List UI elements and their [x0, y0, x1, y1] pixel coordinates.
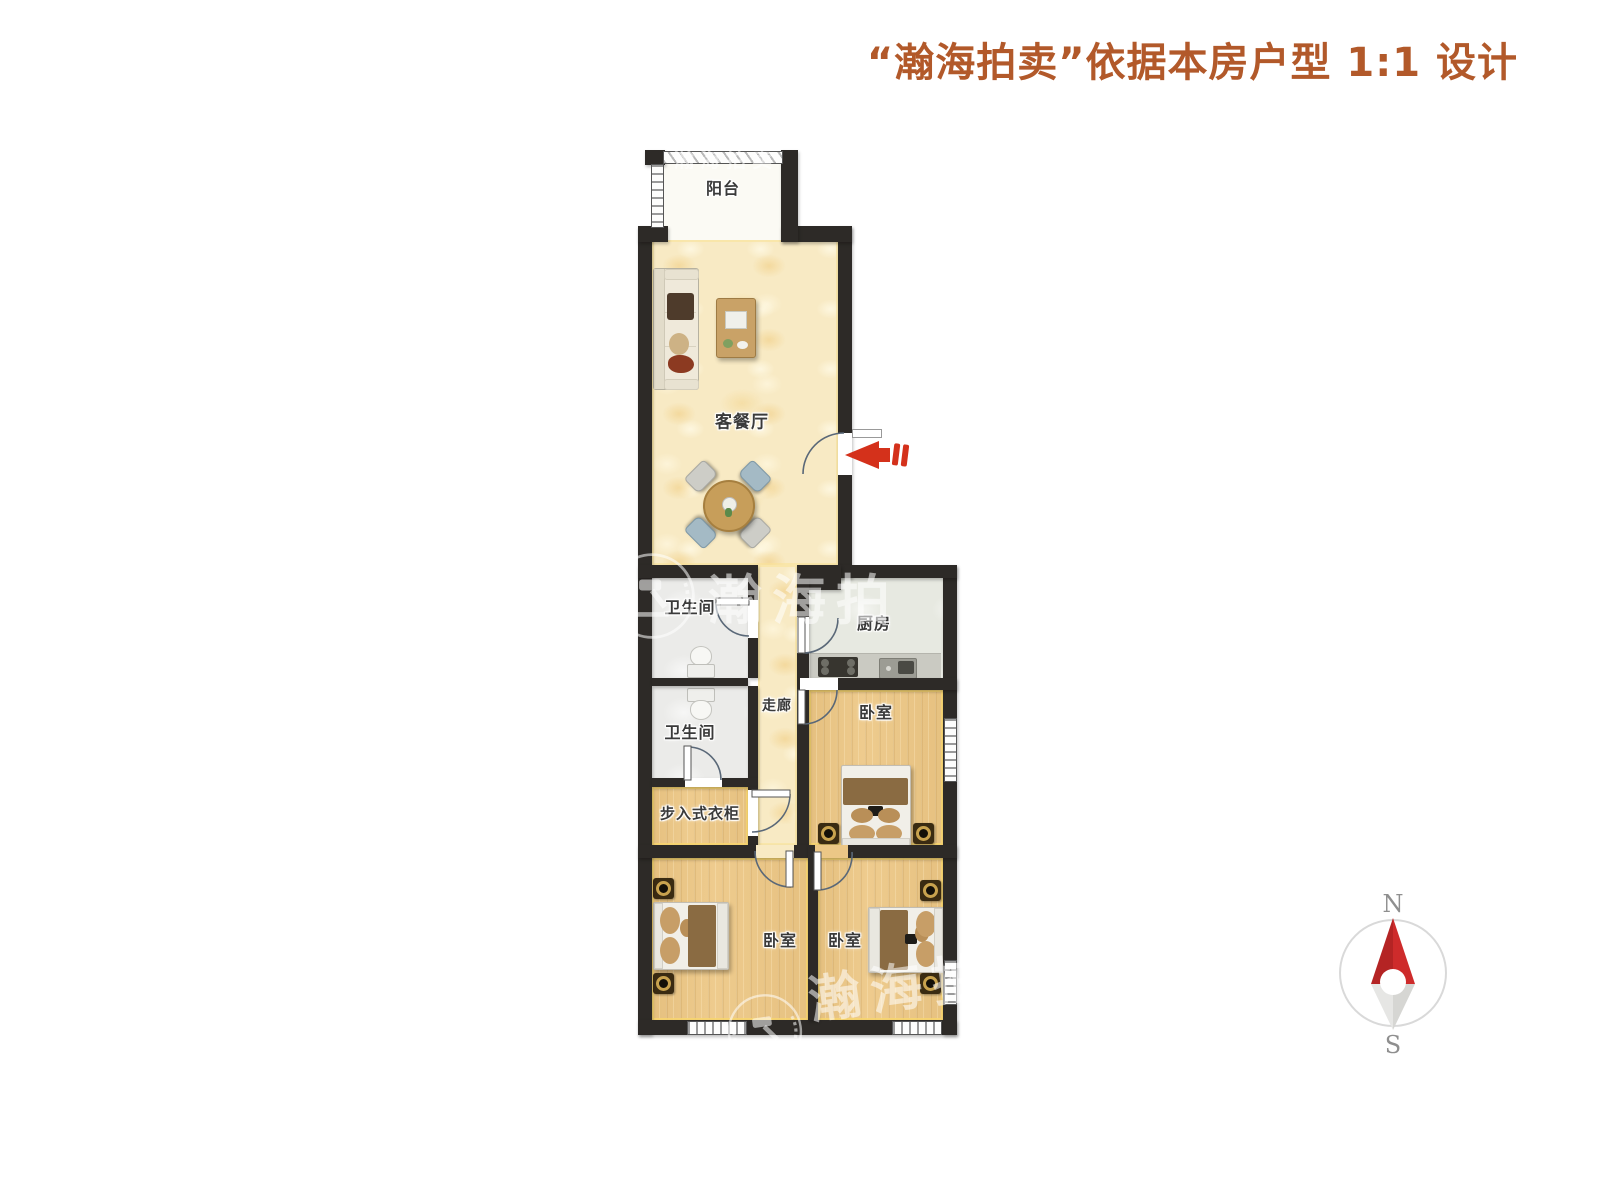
speaker-icon — [653, 878, 674, 899]
sofa-pillow — [667, 293, 694, 320]
watermark-text: 瀚海拍卖 — [674, 144, 778, 173]
pillow — [851, 808, 873, 823]
room-label-bathroom-lower: 卫生间 — [664, 719, 715, 743]
room-label-living-dining: 客餐厅 — [715, 408, 769, 433]
speaker-icon — [818, 823, 839, 844]
sofa-back — [654, 269, 665, 389]
compass-south-needle — [1371, 984, 1393, 1030]
sofa-pillow — [669, 333, 689, 355]
room-label-corridor: 走廊 — [762, 695, 792, 715]
sofa — [653, 268, 699, 390]
window — [944, 718, 957, 782]
wall — [652, 678, 748, 686]
door-opening — [756, 845, 794, 858]
wall — [748, 686, 758, 778]
door-opening — [797, 617, 809, 653]
room-label-bedroom-middle: 卧室 — [859, 699, 893, 723]
compass-north-needle — [1393, 918, 1415, 984]
wall — [808, 845, 818, 1020]
speaker-icon — [920, 973, 941, 994]
door-opening — [685, 778, 722, 787]
bed-bottom-left-bedroom — [653, 902, 729, 970]
blanket — [688, 905, 716, 967]
wall — [638, 226, 652, 1035]
compass-north-label: N — [1383, 890, 1404, 918]
room-label-bedroom-bottom-left: 卧室 — [763, 927, 797, 951]
room-label-bedroom-bottom-right: 卧室 — [828, 927, 862, 951]
room-label-bathroom-upper: 卫生间 — [664, 594, 715, 618]
toilet-upper — [687, 646, 713, 678]
dining-set — [683, 460, 773, 550]
speaker-icon — [920, 880, 941, 901]
compass-south-needle — [1393, 984, 1415, 1030]
compass-north-needle — [1371, 918, 1393, 984]
window — [651, 164, 664, 228]
pillow — [878, 808, 900, 823]
footboard — [717, 903, 728, 969]
footboard — [869, 908, 880, 972]
room-label-kitchen: 厨房 — [857, 610, 891, 634]
pillow — [660, 907, 680, 934]
wall — [797, 690, 809, 845]
window — [892, 1021, 942, 1035]
wall — [638, 226, 668, 242]
toilet-lower — [687, 688, 713, 720]
dining-table — [703, 480, 755, 532]
door-opening — [748, 600, 758, 638]
plant — [723, 339, 733, 348]
pillow — [660, 937, 680, 964]
speaker-icon — [913, 823, 934, 844]
page-title: “瀚海拍卖”依据本房户型 1:1 设计 — [867, 30, 1518, 88]
entrance-opening — [838, 433, 852, 475]
speaker-icon — [653, 973, 674, 994]
wall — [638, 845, 957, 858]
blanket — [843, 778, 908, 805]
blanket — [880, 910, 908, 970]
entrance-lintel — [852, 429, 882, 438]
sofa-throw — [668, 355, 694, 373]
door-opening — [815, 845, 848, 858]
sink — [879, 658, 917, 679]
toilet-bowl — [690, 646, 712, 666]
wall — [645, 150, 665, 165]
bed-bottom-right-bedroom — [868, 907, 944, 973]
kitchen-counter — [810, 653, 941, 680]
room-label-balcony: 阳台 — [706, 175, 740, 199]
garnish — [725, 508, 732, 517]
bed-middle-bedroom — [841, 765, 911, 847]
toilet-bowl — [690, 700, 712, 720]
sink-basin — [898, 661, 914, 674]
wall — [638, 565, 758, 578]
window — [687, 1021, 747, 1035]
pillow — [916, 911, 936, 937]
pillow — [916, 941, 936, 967]
wall — [838, 226, 852, 578]
floor-plan-page: “瀚海拍卖”依据本房户型 1:1 设计 — [0, 0, 1600, 1200]
tray — [725, 311, 747, 329]
coffee-table — [716, 298, 756, 358]
compass-icon: N S — [1340, 890, 1446, 1059]
compass-south-label: S — [1385, 1031, 1401, 1059]
dish — [737, 341, 748, 349]
sofa-armrest — [664, 379, 699, 390]
entrance-arrow-icon — [845, 441, 909, 469]
faucet — [886, 666, 891, 671]
window — [944, 960, 957, 1005]
headboard — [934, 908, 943, 972]
door-opening — [800, 678, 838, 690]
toilet-tank — [687, 664, 715, 678]
door-opening — [748, 790, 758, 836]
wall — [781, 150, 798, 242]
stove — [818, 657, 858, 677]
room-label-walk-in-closet: 步入式衣柜 — [660, 803, 740, 824]
